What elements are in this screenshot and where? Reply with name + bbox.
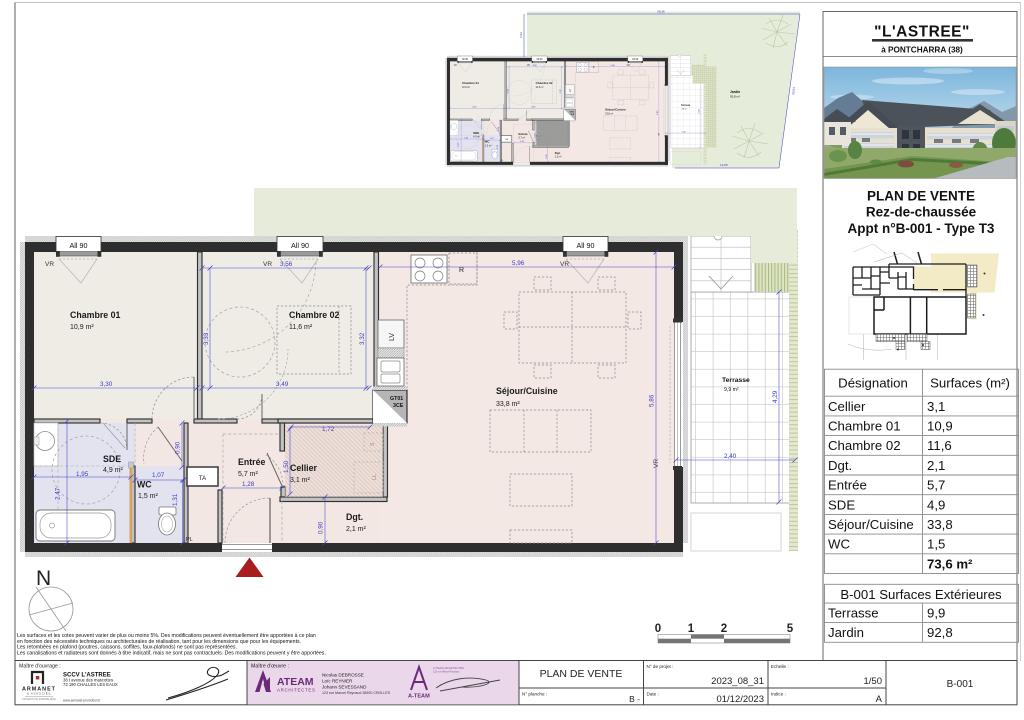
- svg-text:www.armanet-promotion.fr: www.armanet-promotion.fr: [63, 699, 101, 703]
- svg-text:1,5 m²: 1,5 m²: [138, 493, 159, 500]
- svg-text:Les canalisations et radiateur: Les canalisations et radiateurs sont don…: [17, 650, 326, 656]
- svg-text:PLAN DE VENTE: PLAN DE VENTE: [867, 189, 975, 204]
- svg-text:33,8: 33,8: [927, 517, 953, 532]
- svg-text:1,07: 1,07: [152, 472, 165, 479]
- svg-text:01/12/2023: 01/12/2023: [716, 694, 764, 705]
- svg-text:11,6: 11,6: [927, 438, 952, 453]
- svg-text:1,28: 1,28: [242, 481, 255, 488]
- svg-text:4,9: 4,9: [927, 497, 945, 512]
- svg-text:Désignation: Désignation: [838, 376, 908, 391]
- svg-text:All 90: All 90: [70, 241, 88, 250]
- svg-text:Terrasse: Terrasse: [828, 606, 879, 621]
- svg-text:11,6 m²: 11,6 m²: [289, 324, 313, 331]
- svg-text:1,95: 1,95: [76, 471, 89, 478]
- svg-text:73,6 m²: 73,6 m²: [927, 556, 973, 571]
- svg-text:73 190 CHALLES LES EAUX: 73 190 CHALLES LES EAUX: [63, 682, 118, 687]
- svg-text:LV: LV: [389, 333, 396, 341]
- svg-text:5,7 m²: 5,7 m²: [238, 471, 259, 478]
- svg-text:Jardin: Jardin: [730, 90, 740, 94]
- svg-text:N° planche :: N° planche :: [522, 692, 547, 697]
- svg-text:Maître d'œuvre :: Maître d'œuvre :: [251, 664, 289, 670]
- svg-text:2,1: 2,1: [927, 458, 945, 473]
- svg-text:All 90: All 90: [577, 241, 595, 250]
- svg-text:à PONTCHARRA (38): à PONTCHARRA (38): [881, 46, 963, 55]
- svg-text:PL: PL: [186, 537, 193, 543]
- svg-text:Entrée: Entrée: [238, 457, 265, 467]
- svg-text:1/50: 1/50: [864, 676, 883, 687]
- svg-text:1,5: 1,5: [927, 537, 945, 552]
- svg-text:A: A: [876, 694, 883, 705]
- svg-text:N° de projet :: N° de projet :: [647, 664, 674, 669]
- svg-text:28,36: 28,36: [657, 10, 665, 14]
- svg-text:All 90: All 90: [291, 241, 309, 250]
- svg-text:ATEAM: ATEAM: [277, 676, 314, 688]
- svg-text:0,90: 0,90: [175, 441, 182, 454]
- svg-text:Terrasse: Terrasse: [722, 377, 750, 384]
- svg-text:SDE: SDE: [103, 454, 121, 464]
- svg-text:Rez-de-chaussée: Rez-de-chaussée: [866, 205, 977, 220]
- svg-text:Séjour/Cuisine: Séjour/Cuisine: [496, 386, 558, 396]
- svg-text:TA: TA: [199, 476, 206, 482]
- svg-text:Echelle :: Echelle :: [771, 664, 789, 669]
- svg-text:12,05: 12,05: [720, 163, 728, 167]
- svg-text:9,9: 9,9: [927, 606, 945, 621]
- svg-text:Indice :: Indice :: [771, 692, 786, 697]
- svg-text:2023_08_31: 2023_08_31: [711, 676, 764, 687]
- svg-text:3,30: 3,30: [100, 381, 113, 388]
- svg-text:1,50: 1,50: [283, 460, 290, 473]
- svg-text:3,49: 3,49: [276, 381, 289, 388]
- svg-text:0,90: 0,90: [318, 521, 325, 534]
- svg-text:Entrée: Entrée: [828, 478, 867, 493]
- svg-text:& ASSOCIÉS: & ASSOCIÉS: [27, 691, 51, 696]
- svg-text:3,1 m²: 3,1 m²: [290, 477, 311, 484]
- svg-text:1,31: 1,31: [172, 493, 179, 506]
- svg-text:2,61: 2,61: [519, 32, 523, 38]
- svg-text:9,9 m²: 9,9 m²: [724, 387, 739, 393]
- svg-text:B-001 Surfaces Extérieures: B-001 Surfaces Extérieures: [840, 587, 1002, 602]
- svg-text:Maître d'ouvrage :: Maître d'ouvrage :: [19, 664, 61, 670]
- svg-text:92,8 m²: 92,8 m²: [730, 95, 740, 99]
- svg-text:10,9: 10,9: [927, 419, 953, 434]
- svg-text:3,1: 3,1: [927, 399, 945, 414]
- svg-text:Cellier: Cellier: [290, 463, 317, 473]
- svg-text:2,40: 2,40: [724, 453, 737, 460]
- svg-text:A-TEAM: A-TEAM: [408, 694, 430, 700]
- svg-text:5,86: 5,86: [649, 394, 656, 407]
- svg-text:2: 2: [721, 623, 727, 635]
- svg-text:Séjour/Cuisine: Séjour/Cuisine: [828, 517, 914, 532]
- svg-text:12,63: 12,63: [791, 87, 796, 95]
- svg-text:92,8: 92,8: [927, 625, 953, 640]
- svg-text:3,33: 3,33: [203, 332, 210, 345]
- svg-text:2,1 m²: 2,1 m²: [346, 526, 367, 533]
- svg-text:N: N: [36, 567, 51, 590]
- svg-text:VR: VR: [263, 261, 272, 268]
- svg-text:Nicolas DEBROSSE: Nicolas DEBROSSE: [322, 673, 364, 678]
- svg-text:2,47: 2,47: [55, 487, 62, 500]
- svg-text:3,32: 3,32: [359, 332, 366, 345]
- svg-text:123 rue Marcel Reynaud 38920 C: 123 rue Marcel Reynaud 38920 CROLLES: [322, 691, 391, 695]
- svg-text:B -: B -: [629, 694, 640, 704]
- svg-text:4,29: 4,29: [772, 390, 779, 403]
- svg-text:SDE: SDE: [828, 497, 855, 512]
- svg-text:Appt n°B-001 - Type T3: Appt n°B-001 - Type T3: [848, 221, 995, 236]
- svg-text:R: R: [459, 267, 464, 274]
- svg-text:1,72: 1,72: [322, 426, 335, 433]
- svg-text:Date :: Date :: [647, 692, 659, 697]
- svg-text:WC: WC: [137, 480, 152, 490]
- svg-text:WC: WC: [828, 537, 850, 552]
- svg-text:0: 0: [655, 623, 661, 635]
- svg-text:10,9 m²: 10,9 m²: [70, 324, 94, 331]
- svg-text:B-001: B-001: [947, 679, 974, 690]
- svg-text:GT01: GT01: [390, 396, 403, 402]
- svg-text:ARCHITECTES: ARCHITECTES: [277, 688, 316, 693]
- svg-text:1: 1: [688, 623, 695, 635]
- svg-text:VR: VR: [45, 261, 54, 268]
- svg-text:4,9 m²: 4,9 m²: [103, 467, 124, 474]
- svg-text:5,96: 5,96: [512, 260, 525, 267]
- svg-text:VR: VR: [653, 459, 660, 468]
- svg-text:5: 5: [787, 623, 794, 635]
- svg-text:Chambre 01: Chambre 01: [828, 419, 901, 434]
- svg-text:Chambre 01: Chambre 01: [70, 310, 120, 320]
- svg-text:123 rue Marcel Reynaud: 123 rue Marcel Reynaud: [433, 671, 460, 674]
- svg-text:"L'ASTREE": "L'ASTREE": [874, 24, 970, 41]
- svg-text:Johann SEVESSAND: Johann SEVESSAND: [322, 685, 367, 690]
- svg-text:Surfaces (m²): Surfaces (m²): [930, 376, 1010, 391]
- svg-text:PLAN DE VENTE: PLAN DE VENTE: [540, 668, 623, 680]
- svg-text:33,8 m²: 33,8 m²: [496, 401, 520, 408]
- svg-text:Loïc REYNIER: Loïc REYNIER: [322, 679, 353, 684]
- svg-text:A-TEAM ARCHITECTES: A-TEAM ARCHITECTES: [433, 666, 464, 670]
- svg-text:3,56: 3,56: [280, 261, 293, 268]
- svg-text:Dgt.: Dgt.: [828, 458, 852, 473]
- svg-text:5,7: 5,7: [927, 478, 945, 493]
- svg-text:Cellier: Cellier: [828, 399, 866, 414]
- svg-text:Chambre 02: Chambre 02: [828, 438, 901, 453]
- svg-text:3CE: 3CE: [393, 403, 404, 409]
- svg-text:Chambre 02: Chambre 02: [289, 310, 339, 320]
- svg-text:Jardin: Jardin: [828, 625, 864, 640]
- svg-text:Dgt.: Dgt.: [346, 512, 363, 522]
